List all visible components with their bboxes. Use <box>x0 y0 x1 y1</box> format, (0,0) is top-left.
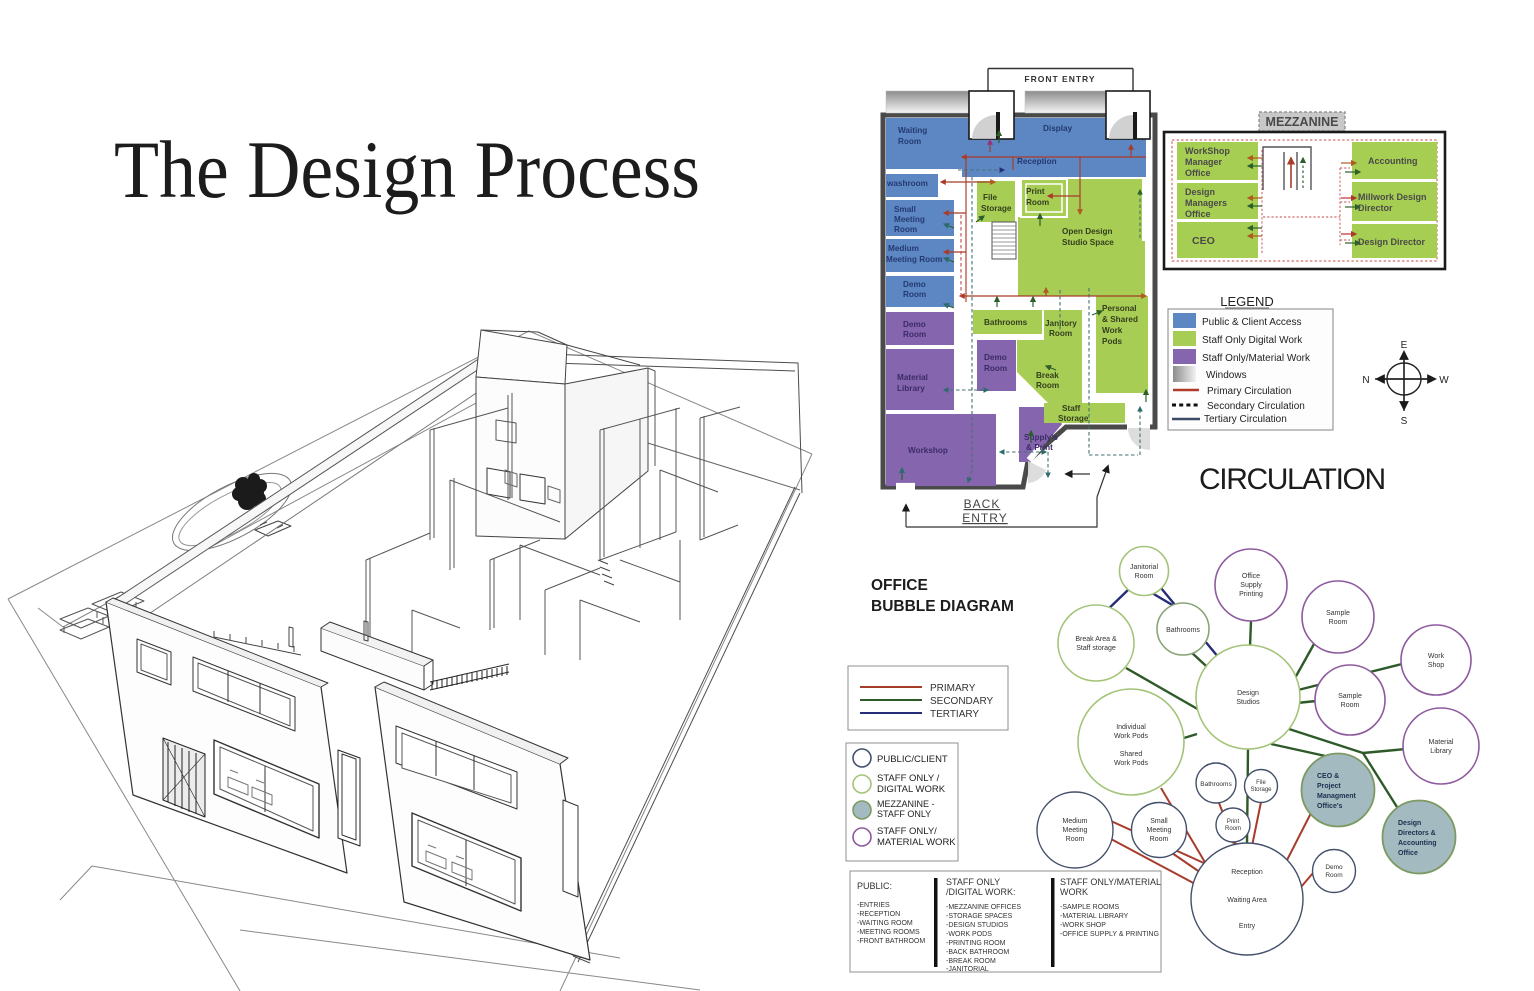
svg-text:Room: Room <box>1329 619 1348 626</box>
svg-text:MEZZANINE -: MEZZANINE - <box>877 799 935 809</box>
svg-text:S: S <box>1401 416 1408 427</box>
svg-text:Room: Room <box>903 290 926 299</box>
svg-text:STAFF ONLY: STAFF ONLY <box>877 809 931 819</box>
svg-text:MEZZANINE: MEZZANINE <box>1266 115 1339 129</box>
svg-text:& Print: & Print <box>1026 443 1053 452</box>
svg-text:Material: Material <box>897 373 928 382</box>
svg-text:Break Area &: Break Area & <box>1075 636 1117 643</box>
svg-text:Manager: Manager <box>1185 157 1223 167</box>
svg-text:Small: Small <box>1150 818 1168 825</box>
svg-text:Meeting Room: Meeting Room <box>886 255 942 264</box>
svg-text:Meeting: Meeting <box>894 215 925 224</box>
svg-text:Work Pods: Work Pods <box>1114 760 1149 767</box>
svg-text:Demo: Demo <box>903 280 926 289</box>
svg-text:Design Director: Design Director <box>1358 237 1426 247</box>
svg-text:-MEZZANINE OFFICES: -MEZZANINE OFFICES <box>946 904 1021 911</box>
svg-text:CEO: CEO <box>1192 235 1215 247</box>
svg-text:Staff Only Digital Work: Staff Only Digital Work <box>1202 335 1303 346</box>
svg-text:PUBLIC:: PUBLIC: <box>857 881 892 891</box>
svg-text:DIGITAL WORK: DIGITAL WORK <box>877 784 946 795</box>
svg-text:Room: Room <box>1036 381 1059 390</box>
svg-text:-ENTRIES: -ENTRIES <box>857 902 890 909</box>
svg-text:/DIGITAL WORK:: /DIGITAL WORK: <box>946 887 1016 897</box>
svg-text:Small: Small <box>894 205 916 214</box>
svg-text:CEO &: CEO & <box>1317 773 1339 780</box>
svg-text:The Design Process: The Design Process <box>114 124 700 215</box>
svg-text:Studios: Studios <box>1236 699 1260 706</box>
svg-text:Studio Space: Studio Space <box>1062 238 1114 247</box>
svg-text:Staff storage: Staff storage <box>1076 645 1116 652</box>
svg-text:Work: Work <box>1428 653 1445 660</box>
svg-text:Room: Room <box>1341 702 1360 709</box>
svg-text:STAFF ONLY/: STAFF ONLY/ <box>877 826 937 837</box>
svg-text:Entry: Entry <box>1239 923 1256 930</box>
svg-text:Janitorial: Janitorial <box>1130 564 1158 571</box>
svg-text:SECONDARY: SECONDARY <box>930 696 993 707</box>
svg-text:Staff Only/Material Work: Staff Only/Material Work <box>1202 353 1311 364</box>
svg-text:-DESIGN STUDIOS: -DESIGN STUDIOS <box>946 922 1009 929</box>
svg-text:Tertiary Circulation: Tertiary Circulation <box>1204 414 1287 425</box>
svg-text:-WAITING ROOM: -WAITING ROOM <box>857 920 913 927</box>
svg-text:Printing: Printing <box>1239 591 1263 598</box>
svg-text:Print: Print <box>1026 187 1045 196</box>
svg-text:Office's: Office's <box>1317 803 1343 810</box>
svg-text:Design: Design <box>1237 690 1259 697</box>
svg-text:WORK: WORK <box>1060 887 1088 897</box>
svg-text:Room: Room <box>1325 872 1342 879</box>
svg-text:Design: Design <box>1185 187 1215 197</box>
svg-text:Sample: Sample <box>1326 610 1350 617</box>
svg-text:Shop: Shop <box>1428 662 1444 669</box>
svg-text:ENTRY: ENTRY <box>962 511 1007 525</box>
svg-text:Office: Office <box>1242 573 1260 580</box>
svg-text:-WORK SHOP: -WORK SHOP <box>1060 922 1106 929</box>
svg-text:Secondary Circulation: Secondary Circulation <box>1207 401 1305 412</box>
svg-text:Room: Room <box>984 364 1007 373</box>
svg-text:PUBLIC/CLIENT: PUBLIC/CLIENT <box>877 754 948 765</box>
svg-text:Room: Room <box>1150 836 1169 843</box>
svg-text:STAFF ONLY /: STAFF ONLY / <box>877 773 940 784</box>
svg-text:Janitory: Janitory <box>1045 319 1077 328</box>
svg-text:Director: Director <box>1358 203 1393 213</box>
svg-text:Meeting: Meeting <box>1147 827 1172 834</box>
svg-text:Demo: Demo <box>984 353 1007 362</box>
svg-text:Accounting: Accounting <box>1368 156 1418 166</box>
svg-text:Room: Room <box>1066 836 1085 843</box>
svg-text:Meeting: Meeting <box>1063 827 1088 834</box>
svg-text:E: E <box>1401 340 1408 351</box>
svg-text:STAFF ONLY/MATERIAL: STAFF ONLY/MATERIAL <box>1060 877 1161 887</box>
svg-text:Storage: Storage <box>1250 787 1272 793</box>
svg-text:Project: Project <box>1317 783 1341 790</box>
svg-text:Sample: Sample <box>1338 693 1362 700</box>
svg-text:Library: Library <box>1430 748 1452 755</box>
svg-text:Reception: Reception <box>1231 869 1263 876</box>
svg-text:& Shared: & Shared <box>1102 315 1138 324</box>
svg-text:Primary Circulation: Primary Circulation <box>1207 386 1291 397</box>
svg-text:Room: Room <box>1026 198 1049 207</box>
svg-text:Library: Library <box>897 384 925 393</box>
svg-text:LEGEND: LEGEND <box>1220 294 1273 309</box>
svg-text:Office: Office <box>1185 168 1211 178</box>
svg-text:Break: Break <box>1036 371 1059 380</box>
svg-text:N: N <box>1362 375 1369 386</box>
svg-text:Room: Room <box>1225 826 1241 832</box>
svg-text:Work: Work <box>1102 326 1123 335</box>
svg-text:Accounting: Accounting <box>1398 840 1437 847</box>
svg-text:Millwork Design: Millwork Design <box>1358 192 1427 202</box>
svg-text:Office: Office <box>1398 850 1418 857</box>
svg-text:Medium: Medium <box>888 244 919 253</box>
svg-text:Shared: Shared <box>1120 751 1143 758</box>
svg-text:-JANITORIAL: -JANITORIAL <box>946 966 989 973</box>
svg-text:-MATERIAL LIBRARY: -MATERIAL LIBRARY <box>1060 913 1129 920</box>
svg-text:Room: Room <box>903 330 926 339</box>
svg-text:STAFF ONLY: STAFF ONLY <box>946 877 1000 887</box>
svg-text:Personal: Personal <box>1102 304 1137 313</box>
svg-text:Office: Office <box>1185 209 1211 219</box>
svg-text:BACK: BACK <box>964 497 1001 511</box>
svg-text:Windows: Windows <box>1206 370 1247 381</box>
svg-text:Directors &: Directors & <box>1398 830 1436 837</box>
svg-text:Bathrooms: Bathrooms <box>1166 627 1200 634</box>
svg-text:-STORAGE SPACES: -STORAGE SPACES <box>946 913 1013 920</box>
svg-text:-BACK BATHROOM: -BACK BATHROOM <box>946 949 1009 956</box>
svg-text:Display: Display <box>1043 124 1073 133</box>
svg-text:Demo: Demo <box>903 320 926 329</box>
svg-text:Demo: Demo <box>1325 864 1343 871</box>
svg-text:Individual: Individual <box>1116 724 1146 731</box>
svg-text:-MEETING ROOMS: -MEETING ROOMS <box>857 929 920 936</box>
svg-text:OFFICE: OFFICE <box>871 577 928 594</box>
svg-text:Bathrooms: Bathrooms <box>984 318 1028 327</box>
svg-text:Waiting Area: Waiting Area <box>1227 897 1267 904</box>
svg-text:Storage: Storage <box>981 204 1012 213</box>
svg-text:File: File <box>1256 780 1266 786</box>
svg-text:W: W <box>1439 375 1449 386</box>
svg-text:Material: Material <box>1429 739 1454 746</box>
svg-text:-WORK PODS: -WORK PODS <box>946 931 992 938</box>
svg-text:BUBBLE DIAGRAM: BUBBLE DIAGRAM <box>871 598 1014 615</box>
svg-text:Room: Room <box>1049 329 1072 338</box>
svg-text:CIRCULATION: CIRCULATION <box>1199 463 1385 496</box>
svg-text:Medium: Medium <box>1063 818 1088 825</box>
svg-text:Storage: Storage <box>1058 414 1089 423</box>
svg-text:Waiting: Waiting <box>898 126 927 135</box>
svg-text:WorkShop: WorkShop <box>1185 146 1230 156</box>
svg-text:-SAMPLE ROOMS: -SAMPLE ROOMS <box>1060 904 1119 911</box>
svg-text:Room: Room <box>894 225 917 234</box>
svg-text:Workshop: Workshop <box>908 446 948 455</box>
svg-text:Public & Client Access: Public & Client Access <box>1202 317 1302 328</box>
svg-text:Supply's: Supply's <box>1024 433 1058 442</box>
svg-text:Work Pods: Work Pods <box>1114 733 1149 740</box>
svg-text:-FRONT BATHROOM: -FRONT BATHROOM <box>857 938 925 945</box>
svg-text:Supply: Supply <box>1240 582 1262 589</box>
svg-text:-OFFICE SUPPLY & PRINTING: -OFFICE SUPPLY & PRINTING <box>1060 931 1159 938</box>
svg-text:washroom: washroom <box>886 179 928 188</box>
svg-text:PRIMARY: PRIMARY <box>930 683 976 694</box>
svg-text:Staff: Staff <box>1062 404 1080 413</box>
svg-text:Room: Room <box>898 137 921 146</box>
svg-text:File: File <box>983 193 998 202</box>
svg-text:Reception: Reception <box>1017 157 1057 166</box>
svg-text:Room: Room <box>1135 573 1154 580</box>
svg-text:Managment: Managment <box>1317 793 1357 800</box>
svg-text:MATERIAL WORK: MATERIAL WORK <box>877 837 956 848</box>
svg-text:Managers: Managers <box>1185 198 1227 208</box>
svg-text:Design: Design <box>1398 820 1421 827</box>
svg-text:Bathrooms: Bathrooms <box>1200 781 1232 788</box>
svg-text:-BREAK ROOM: -BREAK ROOM <box>946 958 996 965</box>
svg-text:Print: Print <box>1227 819 1240 825</box>
svg-text:-RECEPTION: -RECEPTION <box>857 911 900 918</box>
svg-text:-PRINTING ROOM: -PRINTING ROOM <box>946 940 1006 947</box>
svg-text:FRONT ENTRY: FRONT ENTRY <box>1024 74 1095 84</box>
svg-text:Open Design: Open Design <box>1062 227 1113 236</box>
svg-text:Pods: Pods <box>1102 337 1122 346</box>
svg-text:TERTIARY: TERTIARY <box>930 709 979 720</box>
